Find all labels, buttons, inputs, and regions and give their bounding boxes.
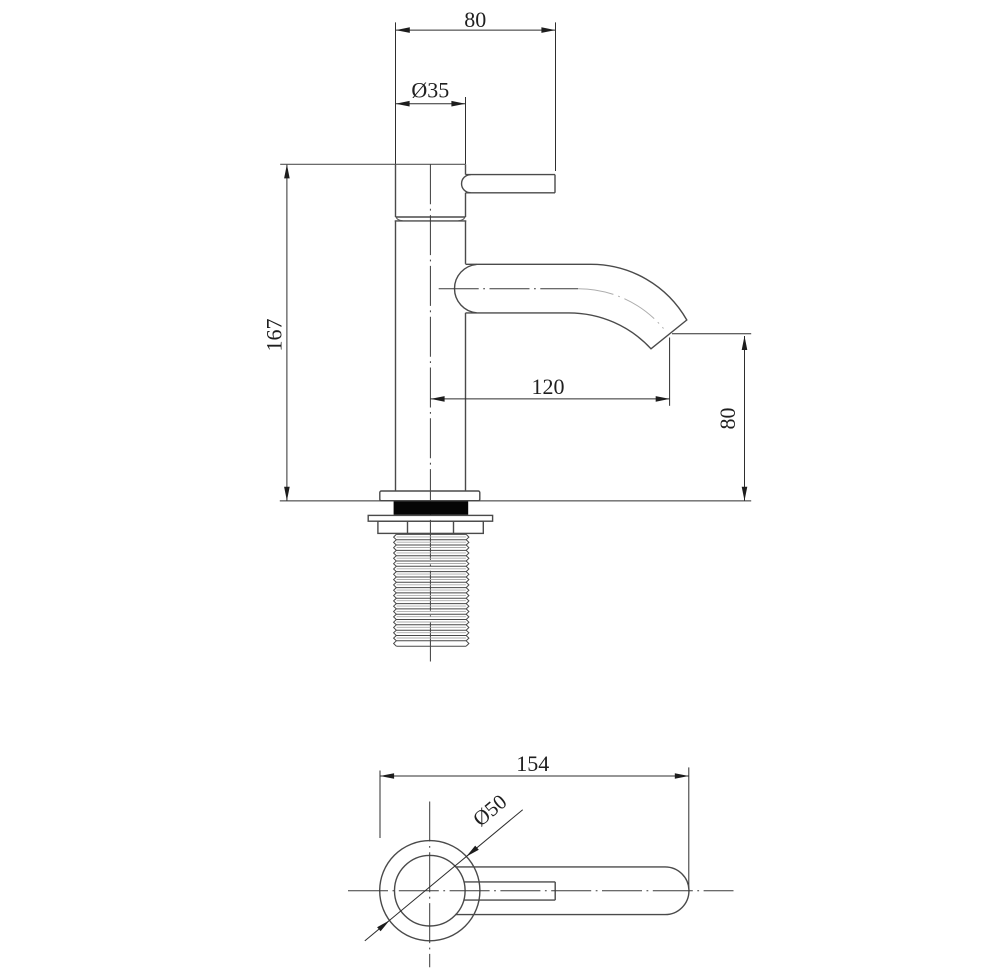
- svg-text:154: 154: [516, 751, 549, 776]
- svg-text:Ø35: Ø35: [411, 77, 449, 102]
- svg-text:80: 80: [715, 408, 740, 430]
- svg-text:167: 167: [262, 319, 287, 352]
- svg-text:120: 120: [532, 374, 565, 399]
- svg-text:80: 80: [464, 7, 486, 32]
